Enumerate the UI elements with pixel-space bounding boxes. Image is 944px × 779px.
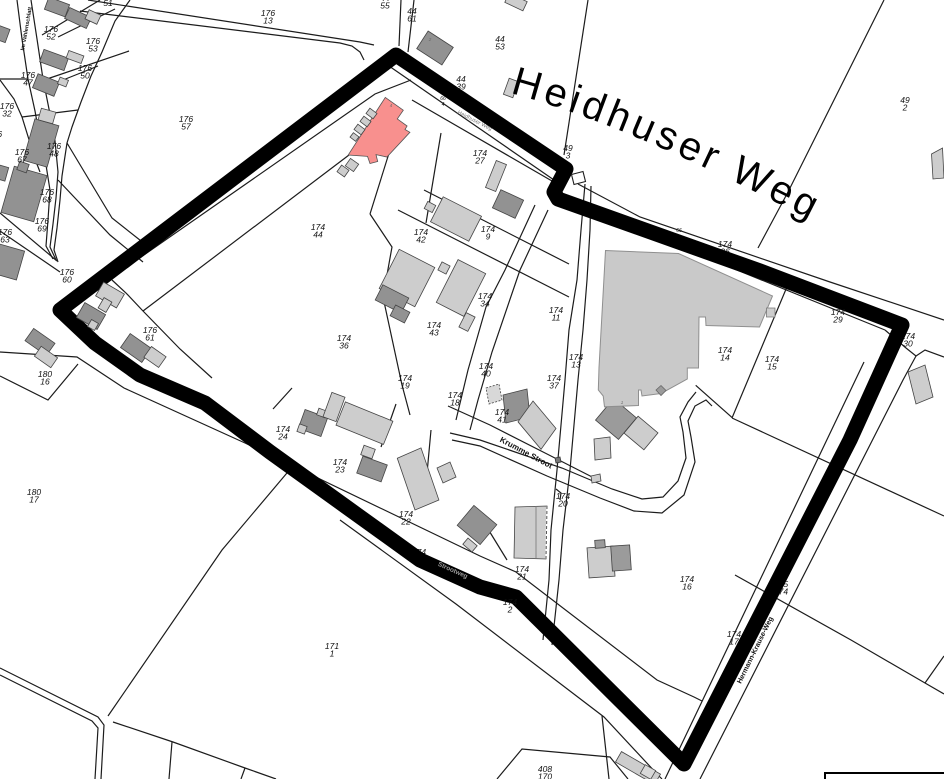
svg-text:4: 4 <box>442 102 445 108</box>
svg-text:13: 13 <box>571 359 581 369</box>
svg-text:55: 55 <box>380 0 390 10</box>
svg-text:16: 16 <box>682 581 692 591</box>
svg-text:11: 11 <box>552 312 561 322</box>
svg-text:51: 51 <box>103 0 113 8</box>
svg-text:2: 2 <box>428 37 432 42</box>
svg-text:30: 30 <box>903 338 913 348</box>
svg-text:20: 20 <box>557 498 568 508</box>
svg-text:43: 43 <box>429 327 439 337</box>
svg-text:24: 24 <box>277 431 288 441</box>
svg-text:3: 3 <box>566 150 571 160</box>
svg-text:40: 40 <box>481 368 491 378</box>
svg-text:36: 36 <box>339 340 349 350</box>
svg-text:29: 29 <box>832 314 843 324</box>
svg-text:27: 27 <box>474 155 485 165</box>
svg-text:32: 32 <box>2 108 12 118</box>
svg-text:39: 39 <box>456 81 466 91</box>
svg-text:60: 60 <box>62 274 72 284</box>
svg-text:2: 2 <box>902 102 908 112</box>
svg-text:22: 22 <box>400 516 411 526</box>
svg-text:48: 48 <box>49 148 59 158</box>
svg-text:52: 52 <box>46 31 56 41</box>
svg-text:50: 50 <box>80 70 90 80</box>
svg-text:9: 9 <box>486 231 491 241</box>
svg-text:44: 44 <box>313 229 323 239</box>
svg-text:67: 67 <box>17 154 27 164</box>
svg-text:42: 42 <box>416 234 426 244</box>
svg-text:61: 61 <box>145 332 155 342</box>
svg-text:13: 13 <box>263 15 273 25</box>
svg-text:18: 18 <box>450 397 460 407</box>
svg-text:53: 53 <box>495 41 505 51</box>
svg-text:19: 19 <box>400 380 410 390</box>
svg-text:23: 23 <box>334 464 345 474</box>
svg-text:41: 41 <box>497 414 507 424</box>
svg-text:176: 176 <box>0 129 2 139</box>
svg-text:57: 57 <box>181 121 191 131</box>
svg-text:66: 66 <box>676 228 682 234</box>
svg-text:53: 53 <box>88 43 98 53</box>
svg-text:47: 47 <box>23 77 33 87</box>
svg-text:16: 16 <box>40 376 50 386</box>
svg-text:61: 61 <box>407 13 417 23</box>
svg-text:2: 2 <box>507 604 513 614</box>
svg-text:21: 21 <box>516 571 527 581</box>
svg-text:37: 37 <box>549 380 559 390</box>
svg-text:68: 68 <box>42 194 52 204</box>
svg-text:170: 170 <box>538 771 552 779</box>
svg-text:63: 63 <box>0 234 10 244</box>
svg-text:34: 34 <box>480 298 490 308</box>
svg-text:14: 14 <box>720 352 730 362</box>
svg-text:15: 15 <box>767 361 777 371</box>
svg-text:1: 1 <box>330 648 335 658</box>
svg-text:17: 17 <box>29 494 39 504</box>
svg-text:69: 69 <box>37 223 47 233</box>
